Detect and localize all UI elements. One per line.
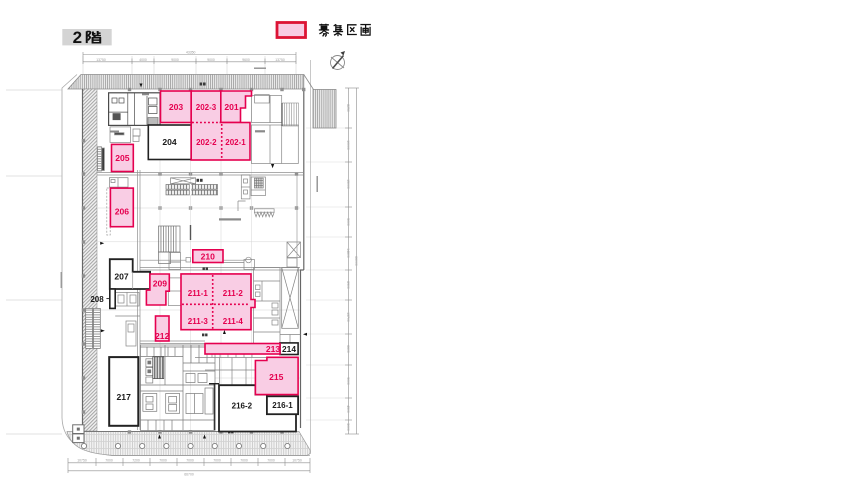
svg-text:211-2: 211-2 [223,289,244,298]
svg-text:215: 215 [269,372,284,382]
svg-text:10750: 10750 [292,459,302,463]
svg-text:211-4: 211-4 [223,317,244,326]
svg-text:10000: 10000 [346,140,350,150]
svg-text:13700: 13700 [346,312,350,322]
svg-text:66700: 66700 [184,472,194,476]
svg-text:10750: 10750 [77,459,87,463]
svg-text:207: 207 [114,272,129,282]
svg-text:13750: 13750 [275,58,285,62]
svg-text:6600: 6600 [346,345,350,353]
svg-text:205: 205 [115,153,130,163]
svg-text:5000: 5000 [346,218,350,226]
svg-text:212: 212 [155,331,170,341]
svg-text:201: 201 [224,102,239,112]
svg-text:14800: 14800 [346,248,350,258]
svg-text:7000: 7000 [240,459,248,463]
svg-text:208: 208 [90,295,104,304]
svg-text:217: 217 [117,392,132,402]
svg-text:2: 2 [73,28,82,47]
svg-text:7000: 7000 [267,459,275,463]
svg-text:7000: 7000 [186,459,194,463]
svg-text:13750: 13750 [96,58,106,62]
svg-text:9000: 9000 [171,58,179,62]
svg-text:7200: 7200 [132,459,140,463]
svg-text:202-1: 202-1 [225,138,246,147]
svg-text:15000: 15000 [346,179,350,189]
svg-text:216-2: 216-2 [232,401,253,410]
svg-text:202-2: 202-2 [196,138,217,147]
svg-text:3000: 3000 [346,423,350,431]
svg-text:206: 206 [115,207,130,217]
svg-text:8900: 8900 [346,281,350,289]
svg-text:210: 210 [201,252,216,262]
svg-text:9000: 9000 [346,377,350,385]
svg-text:4500: 4500 [346,405,350,413]
svg-text:43350: 43350 [186,51,196,55]
svg-text:4000: 4000 [139,58,147,62]
svg-text:8250: 8250 [346,104,350,112]
svg-text:202-3: 202-3 [196,103,217,112]
svg-text:211-3: 211-3 [188,317,209,326]
svg-text:7000: 7000 [159,459,167,463]
svg-text:214: 214 [282,344,296,354]
svg-text:9000: 9000 [207,58,215,62]
svg-text:7000: 7000 [213,459,221,463]
svg-text:209: 209 [153,279,168,289]
svg-text:204: 204 [162,137,177,147]
svg-text:211-1: 211-1 [188,289,209,298]
svg-text:203: 203 [169,102,184,112]
svg-text:7000: 7000 [105,459,113,463]
svg-text:216-1: 216-1 [272,401,293,410]
svg-text:213: 213 [266,344,281,354]
svg-text:9600: 9600 [242,58,250,62]
svg-text:66000: 66000 [354,256,358,266]
